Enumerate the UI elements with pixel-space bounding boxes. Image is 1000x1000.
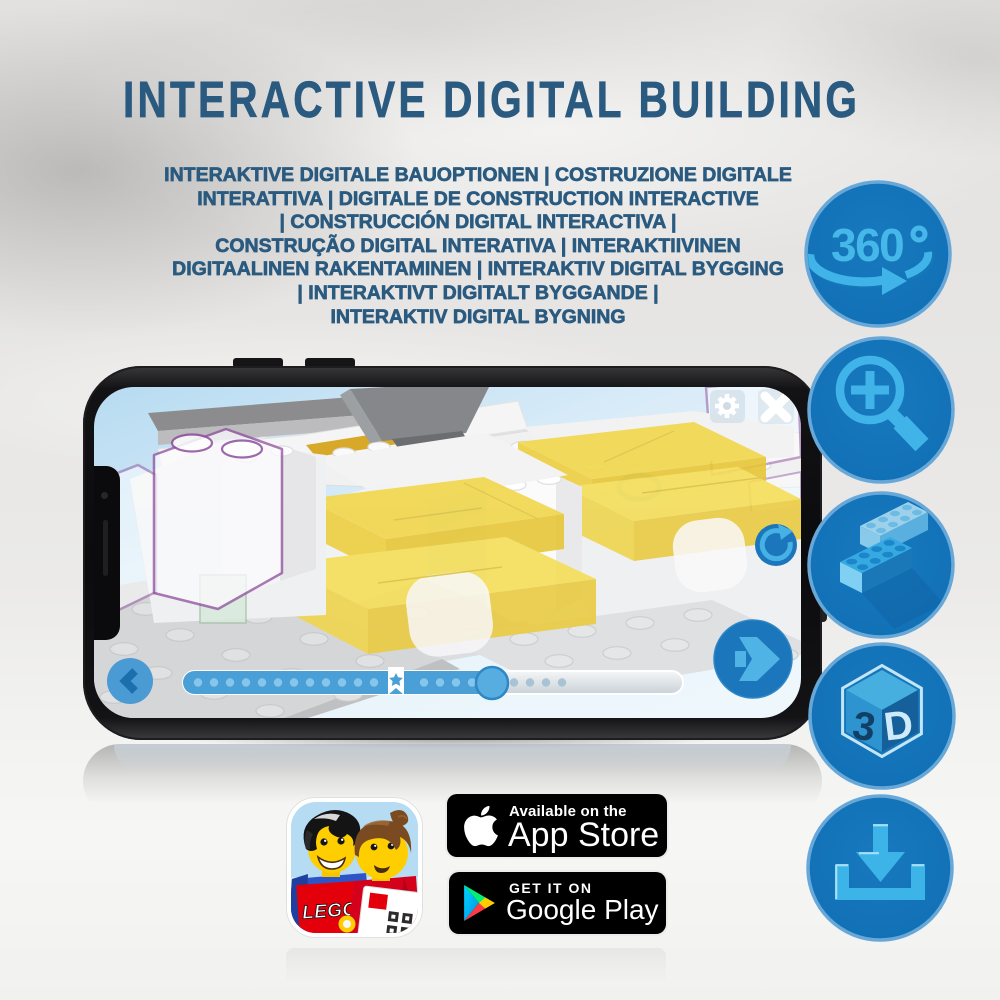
svg-text:360: 360 [831,219,903,271]
svg-text:D: D [882,702,916,749]
